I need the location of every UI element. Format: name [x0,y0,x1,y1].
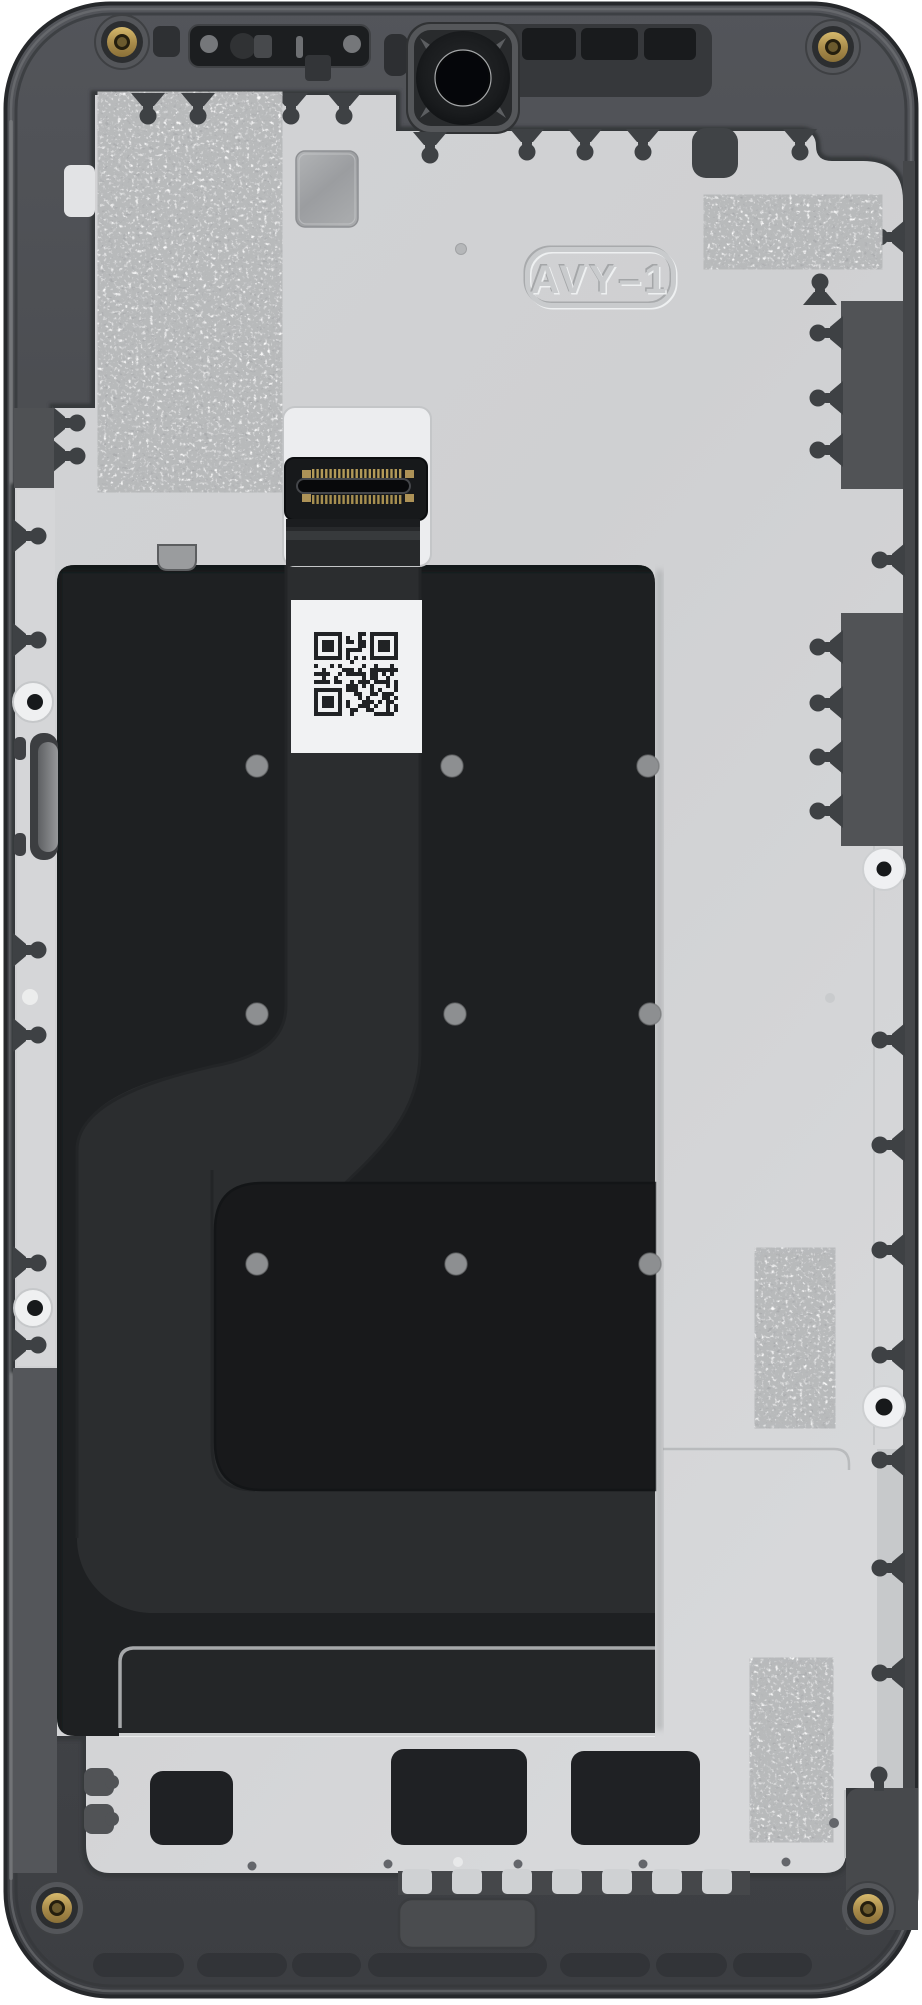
svg-text:AVY–1: AVY–1 [531,258,670,302]
